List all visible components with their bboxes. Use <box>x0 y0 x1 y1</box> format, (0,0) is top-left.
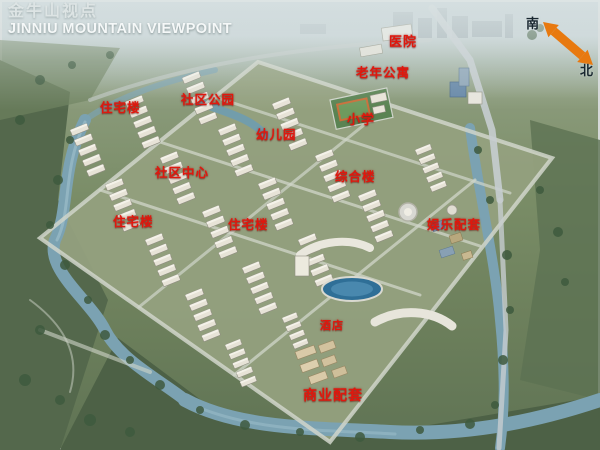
label-commercial: 商业配套 <box>303 385 363 405</box>
label-community-center: 社区中心 <box>155 162 209 181</box>
label-kindergarten: 幼儿园 <box>256 124 297 143</box>
aerial-masterplan-image: 金牛山视点 JINNIU MOUNTAIN VIEWPOINT 南 北 医院 老… <box>0 0 600 450</box>
label-residential-central: 住宅楼 <box>228 214 269 233</box>
title-english: JINNIU MOUNTAIN VIEWPOINT <box>8 21 232 38</box>
title-chinese: 金牛山视点 <box>8 3 232 21</box>
label-mixed-use-building: 综合楼 <box>335 166 376 185</box>
label-elementary-school: 小学 <box>347 109 375 128</box>
label-hotel: 酒店 <box>320 317 344 333</box>
aerial-scene <box>0 0 600 450</box>
label-residential-west: 住宅楼 <box>113 211 154 230</box>
compass-north-label: 北 <box>580 60 593 79</box>
label-hospital: 医院 <box>389 31 417 50</box>
label-senior-apartments: 老年公寓 <box>356 62 410 81</box>
label-entertainment: 娱乐配套 <box>427 214 481 233</box>
label-residential-north: 住宅楼 <box>100 97 141 116</box>
viewpoint-title: 金牛山视点 JINNIU MOUNTAIN VIEWPOINT <box>8 3 232 38</box>
compass-south-label: 南 <box>526 13 539 32</box>
label-community-park: 社区公园 <box>181 89 235 108</box>
